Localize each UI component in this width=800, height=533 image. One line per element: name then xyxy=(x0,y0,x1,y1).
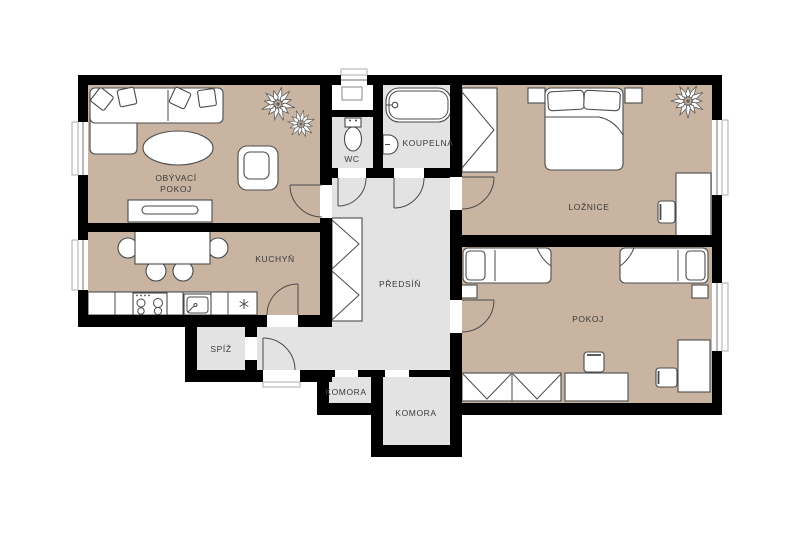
toilet-bowl xyxy=(345,127,362,151)
wc-furniture xyxy=(345,118,362,151)
wall-segment xyxy=(78,75,341,85)
closet-large-label: KOMORA xyxy=(395,408,436,418)
bathtub-tap-knob xyxy=(392,102,398,108)
door-opening xyxy=(245,337,257,360)
door-opening xyxy=(338,168,366,178)
wall-segment xyxy=(462,235,712,247)
entrance-threshold xyxy=(263,382,300,387)
bedroom-wardrobe xyxy=(462,88,497,172)
wall-segment xyxy=(78,85,88,122)
wall-segment xyxy=(358,370,385,377)
shaft-box xyxy=(342,87,362,100)
wall-segment xyxy=(450,210,462,300)
door-opening xyxy=(320,185,332,218)
kids-side-desk xyxy=(678,340,710,392)
toilet-button xyxy=(349,120,351,122)
wall-segment xyxy=(371,445,462,457)
dining-table xyxy=(135,230,210,264)
entrance-door-opening xyxy=(263,370,300,382)
pantry-label: SPÍŽ xyxy=(210,344,231,354)
sofa-pillow xyxy=(117,87,137,107)
window-sill xyxy=(722,283,728,351)
kids-desk xyxy=(565,373,628,401)
wall-segment xyxy=(78,175,88,240)
coffee-table xyxy=(143,131,213,165)
door-opening xyxy=(385,370,409,377)
floor-plan-canvas: OBÝVACÍ POKOJ KUCHYŇ WC KOUPELNA LOŽNICE… xyxy=(0,0,800,533)
nightstand xyxy=(461,285,477,298)
bathroom-label: KOUPELNA xyxy=(402,138,453,148)
window-sill xyxy=(72,122,78,175)
wall-segment xyxy=(332,110,373,117)
window-sill xyxy=(72,240,78,290)
window-sill xyxy=(722,120,728,195)
nightstand xyxy=(625,88,642,103)
wall-segment xyxy=(450,85,462,177)
bed-pillow xyxy=(686,251,705,280)
kids-room-label: POKOJ xyxy=(572,314,604,324)
toilet-button xyxy=(355,120,357,122)
toilet-tank xyxy=(345,118,361,127)
bed-pillow xyxy=(584,90,621,111)
wall-segment xyxy=(371,370,383,457)
tv-bench-detail xyxy=(142,206,198,214)
wall-segment xyxy=(712,195,722,283)
door-opening xyxy=(267,315,298,327)
door-opening xyxy=(450,177,462,210)
wall-segment xyxy=(373,85,383,178)
wc-label: WC xyxy=(344,154,359,164)
wall-segment xyxy=(366,168,394,178)
nightstand xyxy=(528,88,545,103)
wall-segment xyxy=(332,370,335,377)
wall-segment xyxy=(298,315,332,327)
wall-segment xyxy=(332,168,338,178)
wall-segment xyxy=(450,333,462,457)
living-room-label-line2: POKOJ xyxy=(160,184,192,194)
wall-segment xyxy=(409,370,450,377)
wall-segment xyxy=(88,223,320,232)
wall-segment xyxy=(78,290,88,327)
wall-segment xyxy=(320,85,332,185)
kitchen-counter xyxy=(88,292,257,315)
floor-plan-svg: OBÝVACÍ POKOJ KUCHYŇ WC KOUPELNA LOŽNICE… xyxy=(0,0,800,533)
dining-chair xyxy=(208,238,228,258)
wall-segment xyxy=(320,218,332,327)
door-opening xyxy=(450,300,462,333)
closet-small-label: KOMORA xyxy=(325,387,366,397)
wall-segment xyxy=(450,403,722,415)
wall-segment xyxy=(88,315,267,327)
living-room-label-line1: OBÝVACÍ xyxy=(155,173,196,183)
wall-segment xyxy=(245,327,257,337)
nightstand xyxy=(692,285,708,298)
armchair-seat xyxy=(244,152,269,179)
bedroom-desk xyxy=(676,173,711,236)
bed-pillow xyxy=(548,90,585,111)
kitchen-label: KUCHYŇ xyxy=(255,254,295,264)
hall-label: PŘEDSÍŇ xyxy=(379,279,421,289)
door-opening xyxy=(394,168,424,178)
window-sill xyxy=(341,69,367,75)
sofa-pillow xyxy=(197,88,216,107)
door-opening xyxy=(335,370,358,377)
wall-segment xyxy=(245,370,263,382)
wall-segment xyxy=(712,85,722,120)
wall-segment xyxy=(367,75,722,85)
hall-furniture xyxy=(332,218,362,321)
bed-pillow xyxy=(466,251,485,280)
bedroom-label: LOŽNICE xyxy=(568,202,609,212)
